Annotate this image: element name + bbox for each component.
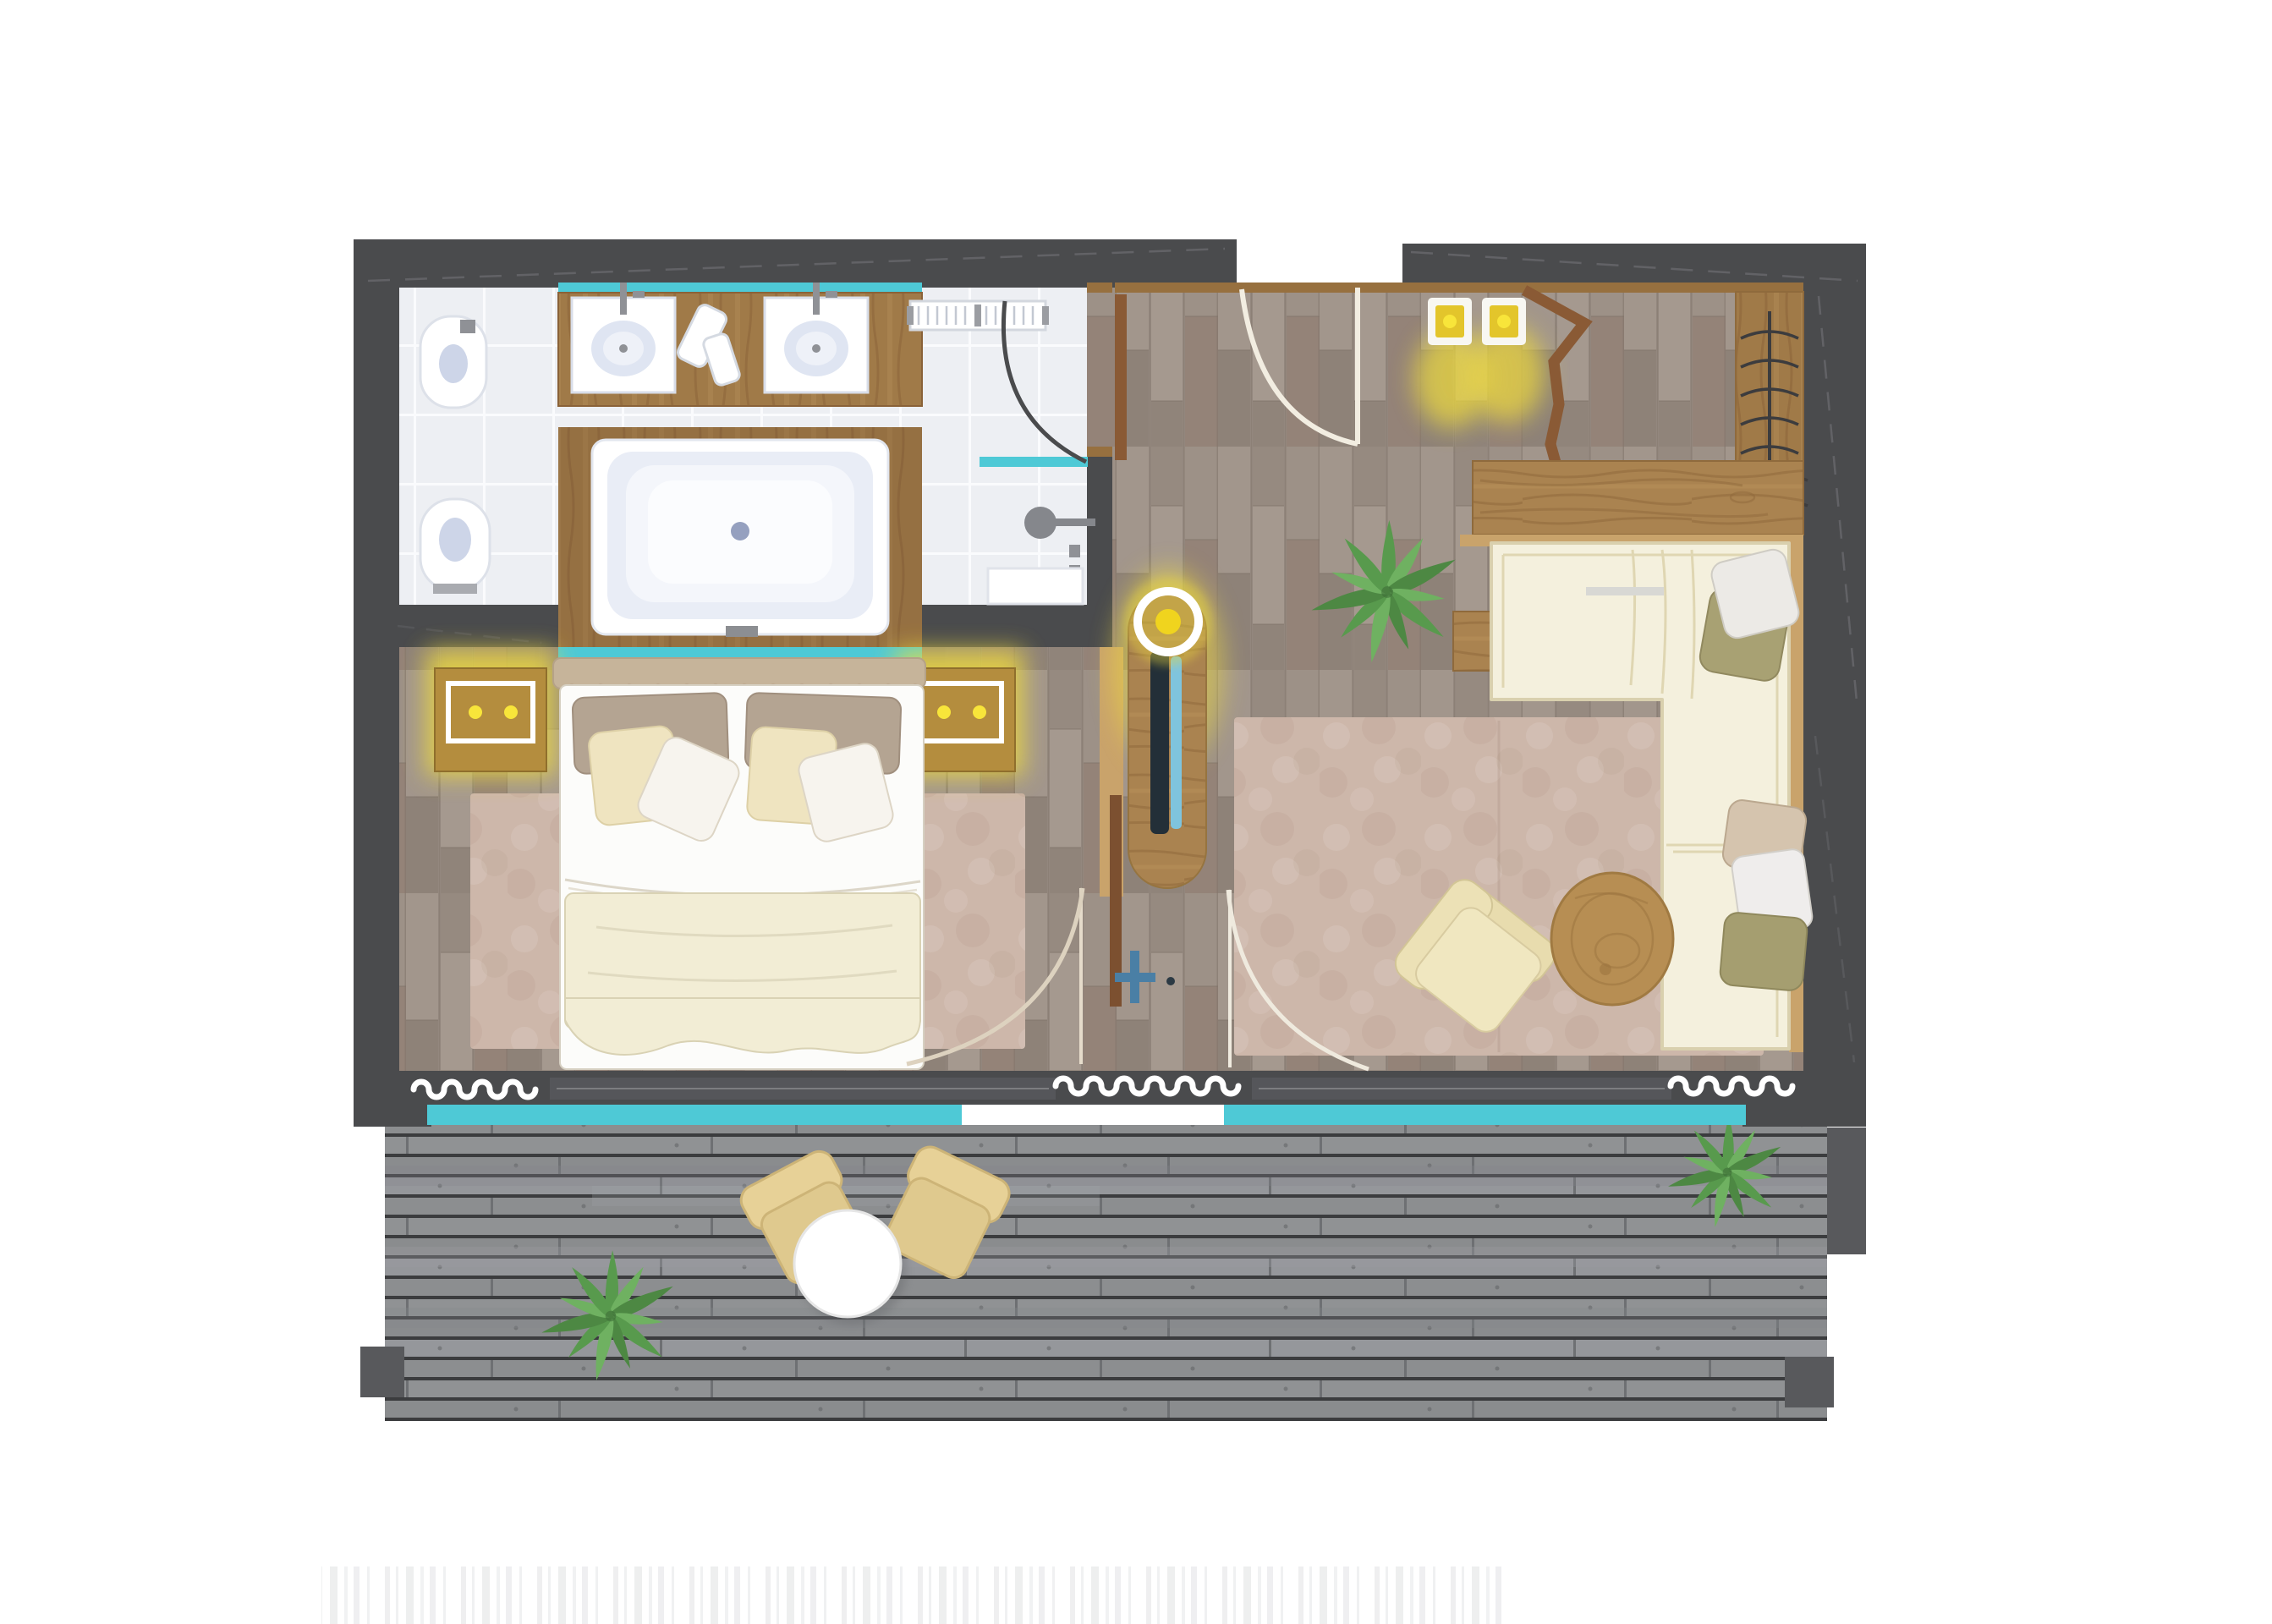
pillar-terrace-right-top xyxy=(1827,1127,1866,1254)
bathtub xyxy=(558,427,922,647)
wall-right xyxy=(1803,244,1866,1074)
deck-plank-variation xyxy=(385,1247,1827,1267)
hall-top-threshold xyxy=(1115,283,1803,293)
wall-bath-right xyxy=(1087,457,1112,647)
bed-head-glazing xyxy=(558,647,922,658)
bedside-lamp-dot xyxy=(469,705,482,719)
shower-glass xyxy=(980,457,1088,467)
wall-bottom-corner-right xyxy=(1742,1071,1866,1127)
vanity-backsplash xyxy=(558,283,922,293)
pillar-terrace-left xyxy=(360,1347,404,1397)
tv-panel xyxy=(1150,651,1169,834)
toilet xyxy=(420,499,490,594)
bedside-lamp-dot xyxy=(973,705,986,719)
coffee-table xyxy=(1551,873,1673,1005)
bathroom-door-leaf xyxy=(1115,294,1127,460)
nightstand-left xyxy=(435,668,546,771)
sill-bedroom xyxy=(427,1105,962,1125)
floor-plan-canvas xyxy=(0,0,2272,1624)
bedside-lamp-dot xyxy=(504,705,518,719)
sofa-remote xyxy=(1586,587,1664,595)
desk xyxy=(1473,461,1803,535)
wall-bath-bed-right xyxy=(922,605,1112,647)
sink-left xyxy=(572,283,675,392)
entry-threshold xyxy=(1237,283,1402,293)
double-bed xyxy=(553,658,925,1069)
sill-living xyxy=(1224,1105,1746,1125)
sink-right xyxy=(765,283,868,392)
pillar-terrace-right-bottom xyxy=(1785,1357,1834,1407)
shower-tray xyxy=(988,568,1083,604)
bedroom xyxy=(426,650,1083,1069)
towel-rack xyxy=(907,301,1049,330)
ceiling-spotlight-2 xyxy=(1482,298,1526,345)
ceiling-lamp xyxy=(1124,578,1212,666)
ceiling-spotlight-1 xyxy=(1428,298,1472,345)
terrace xyxy=(360,1116,1866,1421)
duvet xyxy=(565,893,920,1055)
wall-top-left xyxy=(354,239,1237,288)
headboard xyxy=(553,658,925,689)
deck-plank-variation xyxy=(385,1166,1827,1186)
wall-left xyxy=(354,239,399,1127)
bedside-lamp-dot xyxy=(937,705,951,719)
bottom-faint-texture xyxy=(321,1566,1506,1624)
bath-door-jamb-bottom xyxy=(1087,447,1112,457)
bath-door-jamb-top xyxy=(1087,283,1112,293)
terrace-table xyxy=(794,1210,901,1317)
tv-screen xyxy=(1171,656,1182,829)
floor-plan-page xyxy=(0,0,2272,1624)
bidet xyxy=(420,316,486,408)
shower-head xyxy=(1024,507,1056,539)
